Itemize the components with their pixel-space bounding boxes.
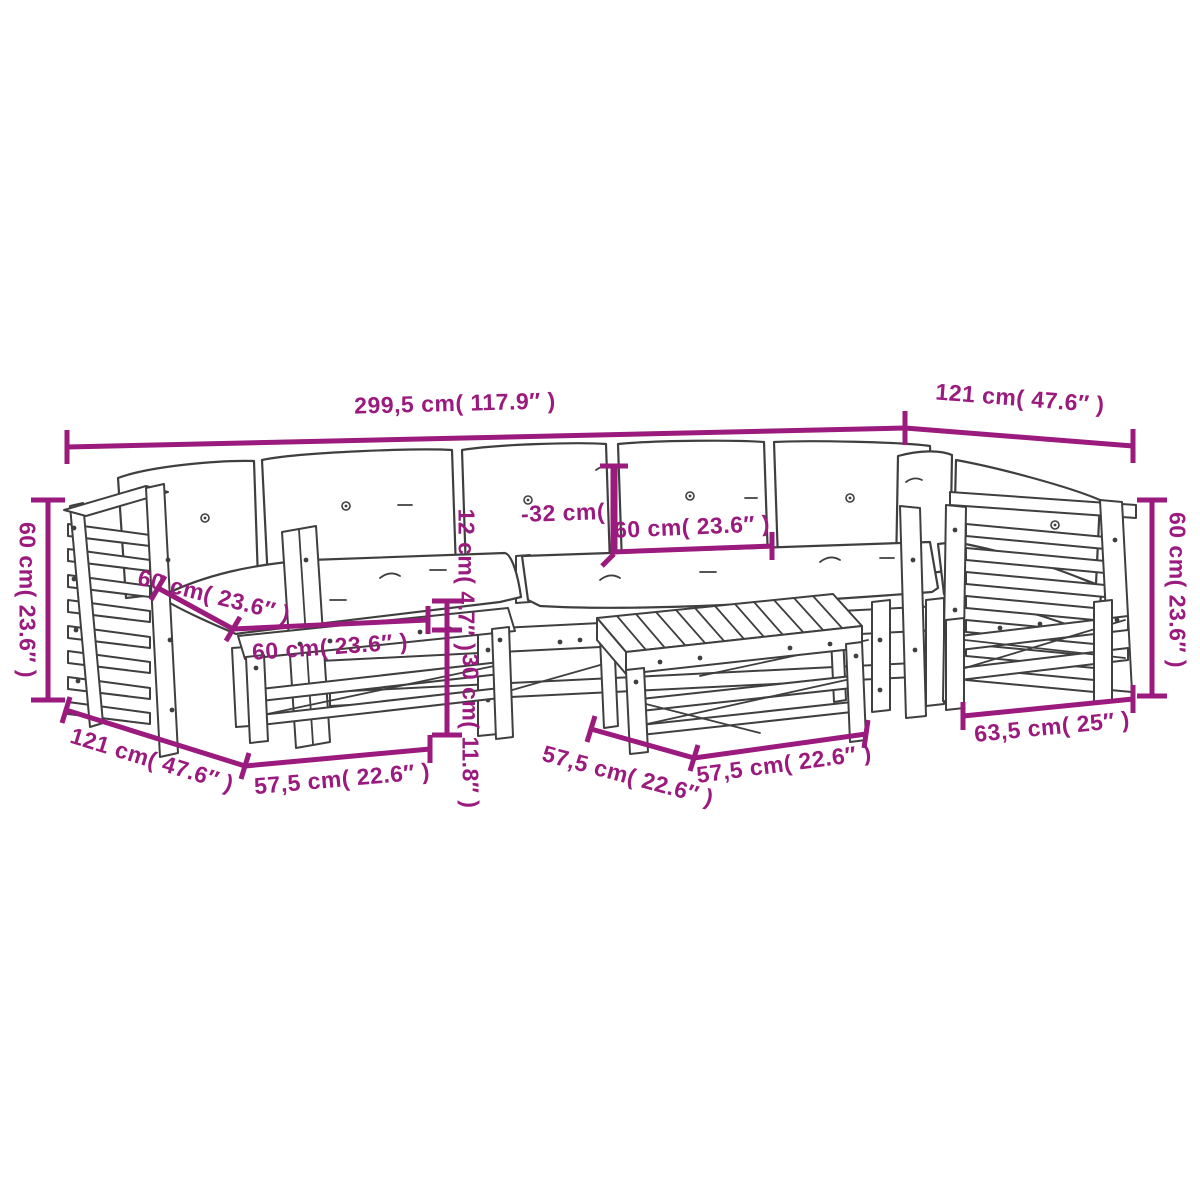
dim-label-frame-height: 30 cm( 11.8″ ) — [457, 654, 484, 809]
dim-label-backrest-height-left: 60 cm( 23.6″ ) — [14, 522, 41, 678]
dim-label-seat-cushion-thickness: 12 cm( 4.7″ ) — [453, 509, 480, 652]
dim-label-back-cushion-height: -32 cm( — [521, 498, 606, 528]
dim-label-total-width: 299,5 cm( 117.9″ ) — [354, 387, 556, 419]
dim-right-height-line — [1137, 500, 1167, 696]
dim-label-armrest-height-right: 60 cm( 23.6″ ) — [1164, 512, 1191, 668]
product-dimension-diagram: 299,5 cm( 117.9″ ) 121 cm( 47.6″ ) 60 cm… — [0, 0, 1200, 1200]
